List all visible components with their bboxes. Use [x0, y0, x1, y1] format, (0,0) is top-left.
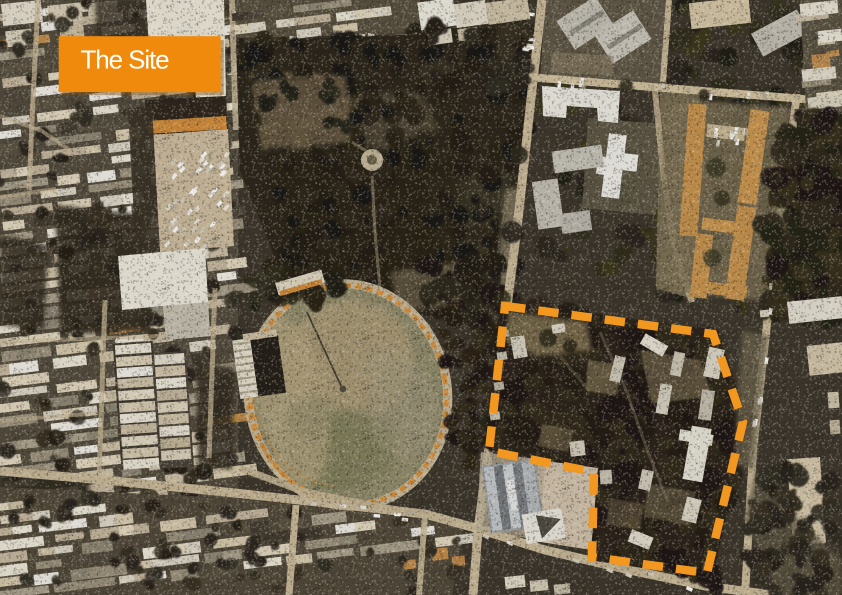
svg-text:The Site: The Site — [81, 45, 170, 75]
